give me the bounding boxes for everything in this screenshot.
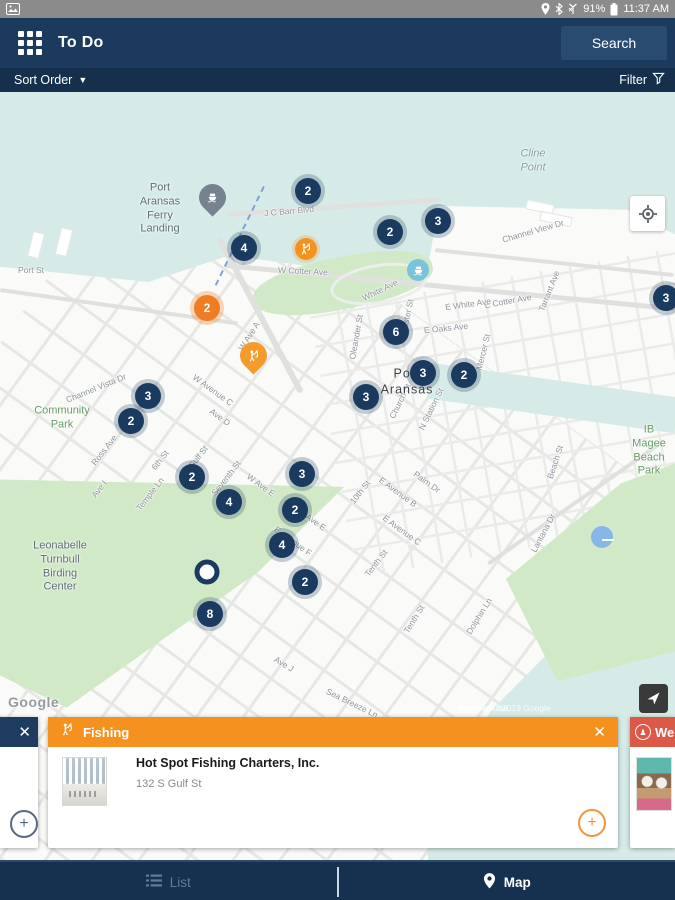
card-fishing[interactable]: Fishing ✕ Hot Spot Fishing Charters, Inc… [48,717,618,848]
card-next-header: ♟ We [630,717,675,747]
google-logo: Google [8,694,59,710]
map-pin-icon [483,873,496,892]
screenshot-icon [6,3,20,15]
map-cluster-marker[interactable]: 3 [135,383,161,409]
map-cluster-marker[interactable]: 4 [231,235,257,261]
sort-order-label: Sort Order [14,73,72,87]
map-cluster-marker[interactable]: 2 [377,219,403,245]
map-cluster-marker[interactable]: 3 [653,285,675,311]
map-water [0,92,675,282]
card-next-partial[interactable]: ♟ We [630,717,675,848]
beach-poi-icon [591,526,613,548]
business-thumbnail [636,757,672,811]
add-button[interactable]: + [578,809,606,837]
bottom-nav: List Map [0,860,675,900]
map-cluster-marker[interactable]: 2 [194,295,220,321]
caret-down-icon: ▼ [78,75,87,85]
tab-map[interactable]: Map [339,862,675,900]
app-bar: To Do Search [0,18,675,68]
navigation-button[interactable] [639,684,668,713]
close-icon[interactable]: ✕ [593,725,606,740]
map-place-label: Port Aransas Ferry Landing [140,182,180,237]
sort-order-dropdown[interactable]: Sort Order ▼ [0,73,87,87]
street-label: Port St [18,265,44,275]
list-icon [146,874,162,890]
close-icon[interactable]: ✕ [18,725,31,740]
category-badge-icon: ♟ [635,724,651,740]
map-cluster-marker[interactable]: 2 [292,569,318,595]
street-label: Channel View Dr [501,217,565,244]
business-address: 132 S Gulf St [136,778,201,790]
filter-button[interactable]: Filter [619,72,675,88]
app-screen: 91% 11:37 AM To Do Search Sort Order ▼ F… [0,0,675,900]
battery-icon [610,3,618,16]
fishing-category-marker[interactable] [295,238,317,260]
map-place-label: IB Magee Beach Park [632,424,666,479]
tab-list[interactable]: List [0,862,337,900]
business-title: Hot Spot Fishing Charters, Inc. [136,756,319,770]
app-menu-icon[interactable] [18,31,42,55]
map-cluster-marker[interactable]: 4 [269,532,295,558]
map-cluster-marker[interactable]: 2 [295,178,321,204]
card-previous-header: ✕ [0,717,38,747]
ring-marker[interactable] [195,560,220,585]
map-cluster-marker[interactable]: 2 [451,362,477,388]
page-title: To Do [58,34,104,52]
search-button[interactable]: Search [561,26,667,60]
map-place-label: Cline Point [520,147,545,175]
map-cluster-marker[interactable]: 4 [216,489,242,515]
card-category-label: Fishing [83,725,129,740]
map-cluster-marker[interactable]: 6 [383,319,409,345]
ferry-poi-icon [407,259,429,281]
my-location-button[interactable] [630,196,665,231]
status-bar: 91% 11:37 AM [0,0,675,18]
filter-bar: Sort Order ▼ Filter [0,68,675,92]
card-fishing-header: Fishing ✕ [48,717,618,747]
map-place-label: Community Park [34,404,90,432]
bluetooth-icon [555,3,563,15]
add-button[interactable]: + [10,810,38,838]
map-terms-link[interactable]: Terms of Use [458,703,508,713]
map-cluster-marker[interactable]: 3 [410,360,436,386]
tab-list-label: List [170,875,191,890]
business-thumbnail [62,757,107,806]
map-cluster-marker[interactable]: 8 [197,601,223,627]
fishing-pin-marker[interactable] [234,336,272,374]
map-cluster-marker[interactable]: 3 [425,208,451,234]
map-cluster-marker[interactable]: 3 [353,384,379,410]
map-place-label: Leonabelle Turnbull Birding Center [33,540,87,595]
fishing-icon [60,722,75,742]
card-category-label: We [655,725,674,740]
map-cluster-marker[interactable]: 2 [282,497,308,523]
clock-text: 11:37 AM [623,3,669,15]
ferry-landing-pin[interactable] [193,178,231,216]
location-icon [541,3,550,15]
card-previous-partial[interactable]: ✕ + [0,717,38,848]
result-cards-row: ✕ + Fishing ✕ Hot Spot Fishing Charters,… [0,717,675,848]
filter-label: Filter [619,73,647,87]
funnel-icon [652,72,665,88]
map-cluster-marker[interactable]: 2 [118,408,144,434]
map-cluster-marker[interactable]: 2 [179,464,205,490]
tab-map-label: Map [504,875,531,890]
battery-percent: 91% [583,3,605,15]
map-cluster-marker[interactable]: 3 [289,461,315,487]
signal-icon [568,3,578,15]
